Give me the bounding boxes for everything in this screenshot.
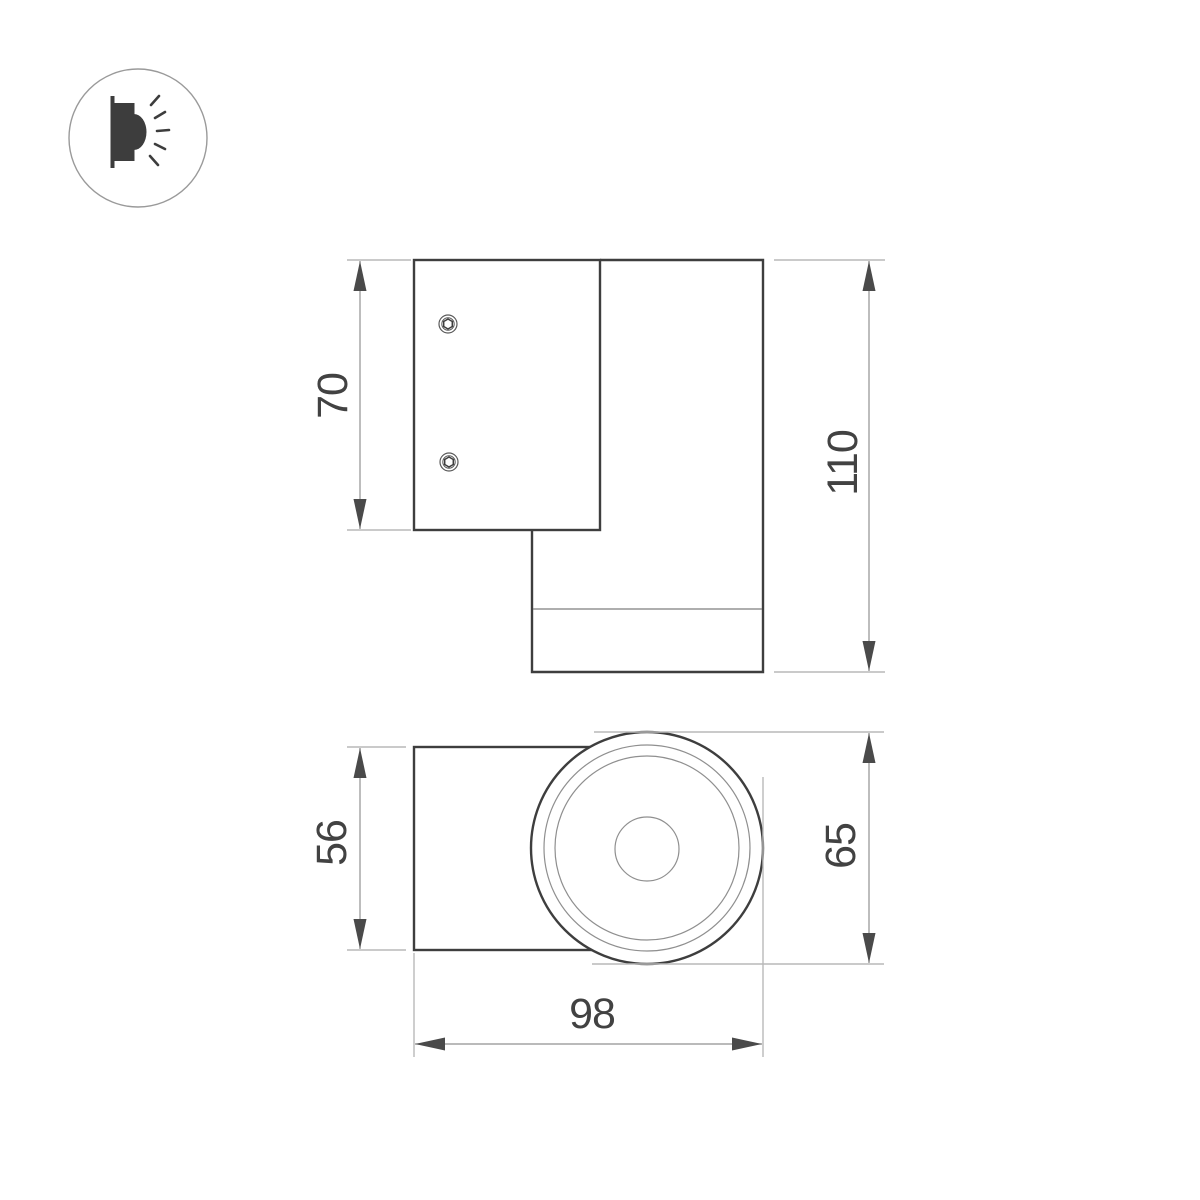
arrowhead-down <box>354 919 367 949</box>
hex-screw-icon <box>440 453 458 471</box>
arrowhead-up <box>863 261 876 291</box>
arrowhead-down <box>354 499 367 529</box>
lens-outer-circle <box>531 732 763 964</box>
brand-logo <box>69 69 207 207</box>
dimension-plate-height: 70 <box>309 260 411 530</box>
light-ray <box>157 130 169 131</box>
dimension-overall-height: 110 <box>774 260 885 672</box>
dimension-label: 70 <box>309 373 357 419</box>
dimension-label: 56 <box>308 820 356 866</box>
arrowhead-left <box>415 1038 445 1051</box>
lamp-body-shape <box>115 103 135 161</box>
dimension-label: 110 <box>819 430 867 496</box>
arrowhead-down <box>863 641 876 671</box>
arrowhead-up <box>354 748 367 778</box>
hex-screw-icon <box>439 315 457 333</box>
wall-line <box>111 96 115 168</box>
dimension-label: 98 <box>569 990 615 1038</box>
technical-drawing-canvas: 70 110 56 <box>0 0 1200 1200</box>
arrowhead-up <box>354 261 367 291</box>
side-view: 70 110 <box>309 260 885 672</box>
mounting-plate <box>414 260 600 530</box>
front-view: 56 65 98 <box>308 732 884 1057</box>
arrowhead-down <box>863 933 876 963</box>
arrowhead-right <box>732 1038 762 1051</box>
drawing-page: 70 110 56 <box>0 0 1200 1200</box>
dimension-body-height: 56 <box>308 747 406 950</box>
dimension-label: 65 <box>817 823 865 869</box>
arrowhead-up <box>863 733 876 763</box>
